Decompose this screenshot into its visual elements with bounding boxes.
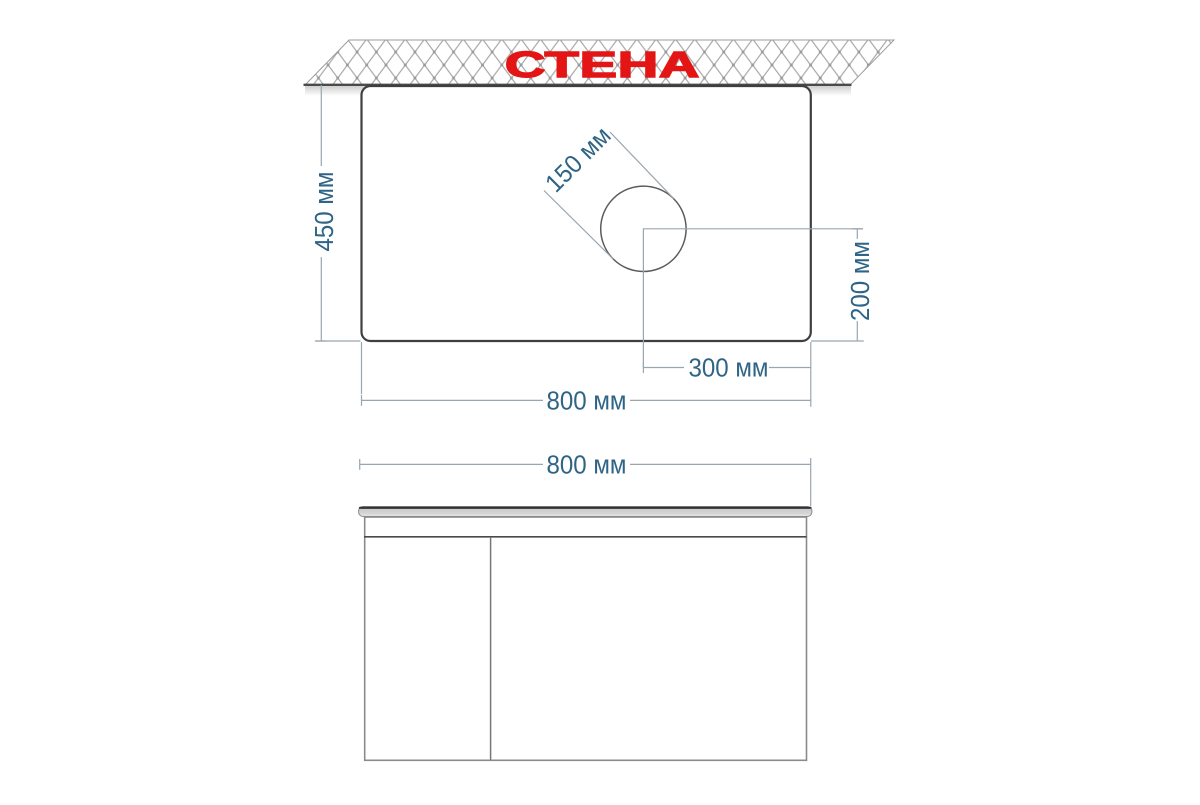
svg-text:800 мм: 800 мм bbox=[547, 451, 627, 479]
svg-text:800 мм: 800 мм bbox=[547, 387, 627, 415]
svg-text:СТЕНА: СТЕНА bbox=[505, 44, 700, 85]
svg-text:200 мм: 200 мм bbox=[847, 241, 875, 321]
svg-text:300 мм: 300 мм bbox=[689, 354, 769, 382]
svg-text:450 мм: 450 мм bbox=[311, 172, 339, 252]
